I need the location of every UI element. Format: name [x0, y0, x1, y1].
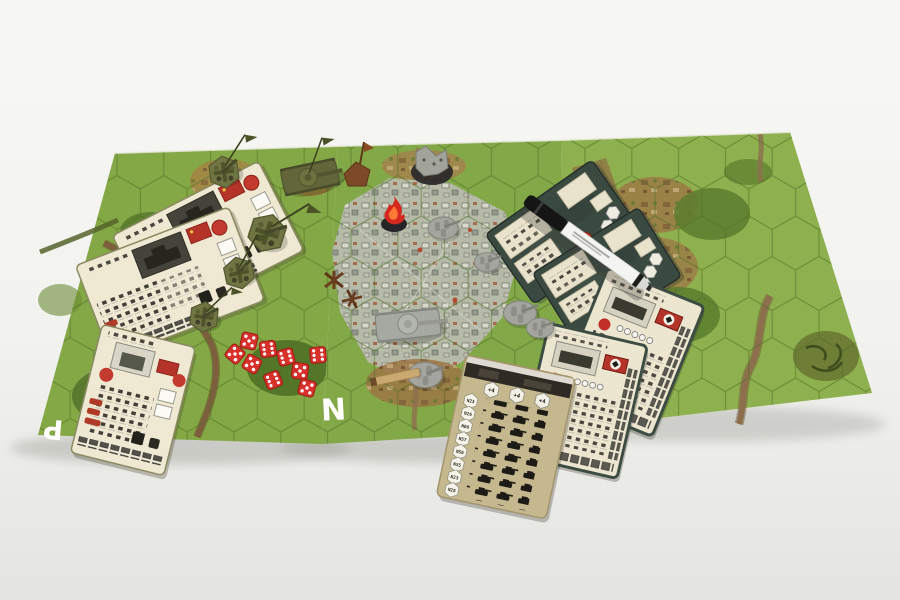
red-die	[297, 378, 317, 398]
red-die	[259, 340, 277, 358]
board-letter-p: P	[42, 412, 64, 445]
scene-canvas: P N	[0, 0, 900, 600]
red-die	[240, 332, 259, 351]
board-letter-n: N	[320, 392, 347, 428]
red-die	[291, 362, 309, 380]
red-die	[309, 346, 326, 363]
photo-scene: P N	[0, 0, 900, 600]
ruined-building-miniature	[411, 146, 453, 185]
